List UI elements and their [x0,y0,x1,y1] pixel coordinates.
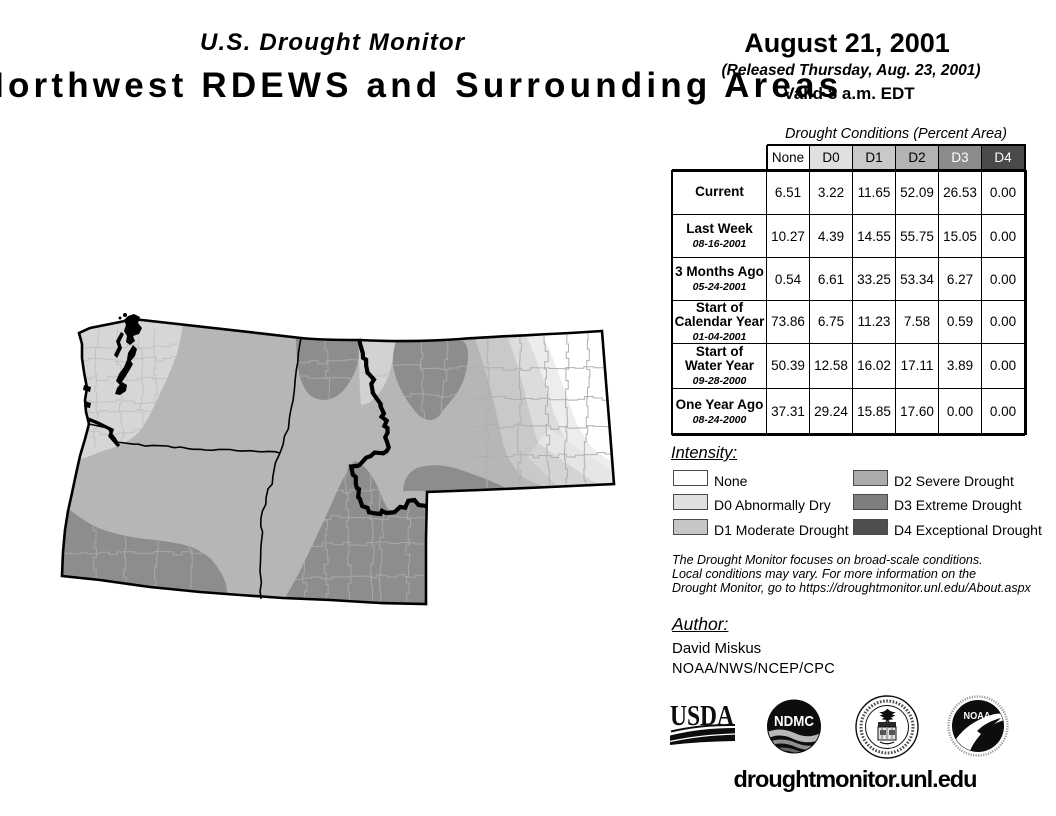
svg-text:NDMC: NDMC [774,713,814,730]
svg-text:NOAA: NOAA [964,711,991,722]
